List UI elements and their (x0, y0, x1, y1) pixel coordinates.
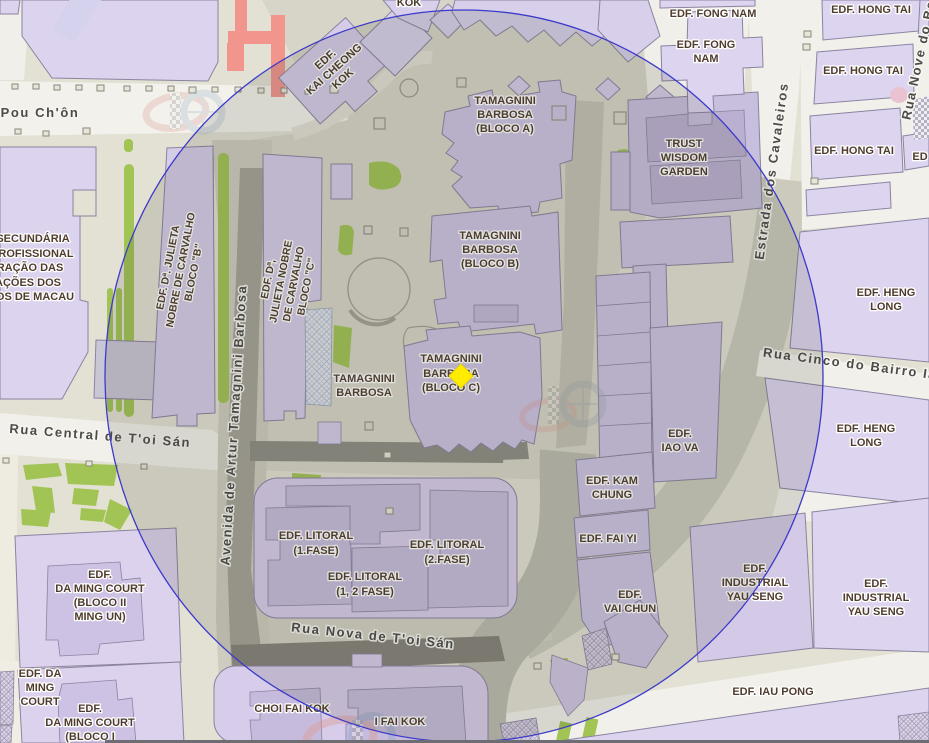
svg-text:COURT: COURT (20, 696, 59, 708)
svg-text:EDF. HONG TAI: EDF. HONG TAI (814, 145, 894, 157)
svg-text:EDF. IAU PONG: EDF. IAU PONG (732, 686, 813, 698)
svg-text:EDF. HONG TAI: EDF. HONG TAI (831, 4, 911, 16)
svg-text:EDF. FONG: EDF. FONG (677, 39, 736, 51)
svg-text:DA MING COURT: DA MING COURT (45, 717, 135, 729)
svg-text:LONG: LONG (870, 301, 902, 313)
svg-text:EDF. HENG: EDF. HENG (857, 287, 916, 299)
svg-text:(BLOCO II: (BLOCO II (74, 597, 127, 609)
svg-text:LONG: LONG (850, 437, 882, 449)
svg-text:EDF. FONG NAM: EDF. FONG NAM (670, 8, 757, 20)
svg-text:OS DE MACAU: OS DE MACAU (0, 291, 74, 303)
svg-text:NAM: NAM (693, 53, 718, 65)
svg-text:ED: ED (912, 151, 927, 163)
svg-text:EDF.: EDF. (88, 569, 112, 581)
svg-text:RAÇÃO DAS: RAÇÃO DAS (0, 261, 63, 274)
svg-text:EDF.: EDF. (864, 578, 888, 590)
svg-text:INDUSTRIAL: INDUSTRIAL (843, 592, 910, 604)
svg-text:MING: MING (26, 682, 55, 694)
svg-text:KOK: KOK (397, 0, 422, 9)
svg-text:Pou Ch'ôn: Pou Ch'ôn (1, 105, 80, 120)
svg-text:YAU SENG: YAU SENG (848, 606, 904, 618)
svg-text:EDF. HONG TAI: EDF. HONG TAI (823, 65, 903, 77)
svg-text:ROFISSIONAL: ROFISSIONAL (0, 248, 74, 260)
svg-text:DA MING COURT: DA MING COURT (55, 583, 145, 595)
svg-text:EDF. DA: EDF. DA (19, 668, 62, 680)
svg-text:EDF. HENG: EDF. HENG (837, 423, 896, 435)
svg-text:MING UN): MING UN) (74, 611, 126, 623)
svg-text:AÇÕES DOS: AÇÕES DOS (0, 276, 61, 289)
svg-text:EDF.: EDF. (78, 703, 102, 715)
svg-text:SECUNDÁRIA: SECUNDÁRIA (0, 232, 70, 245)
